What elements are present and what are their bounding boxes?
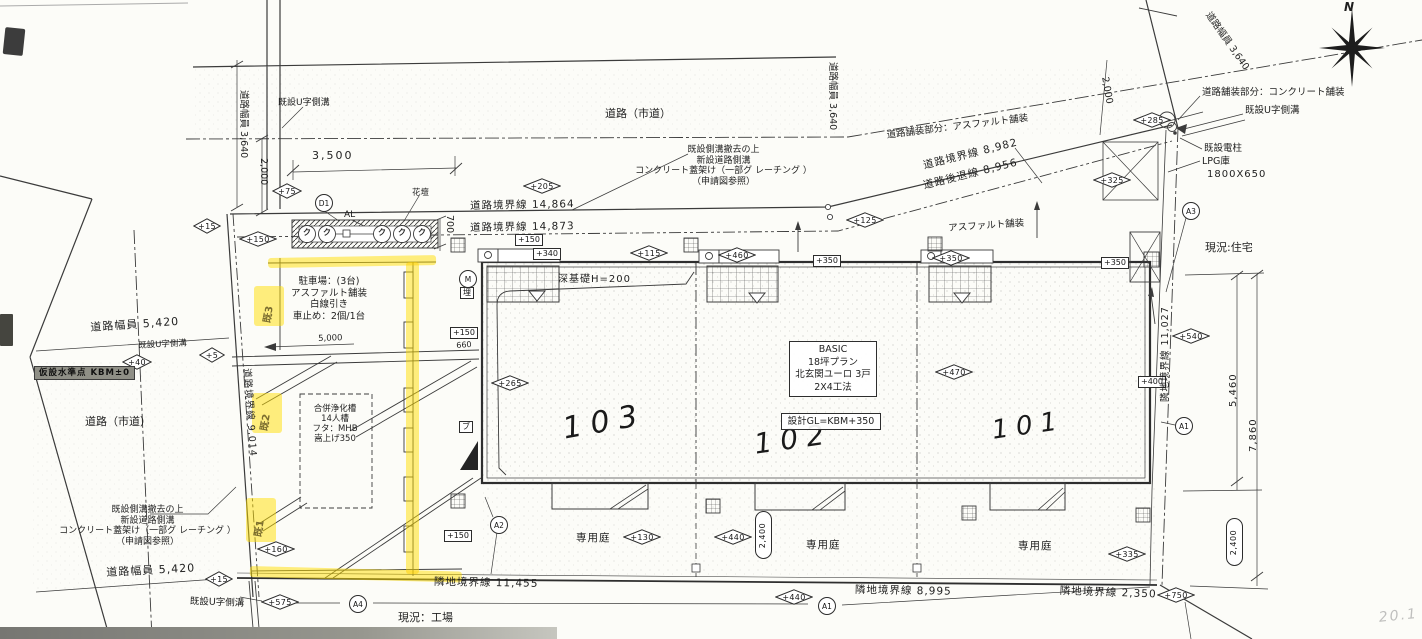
scan-edge-bar bbox=[0, 627, 557, 639]
scan-artifact-layer bbox=[0, 0, 1422, 639]
scan-blob-topleft bbox=[3, 27, 26, 56]
site-plan-canvas: +205+75+15+150+115+460+350+265+470+325+2… bbox=[0, 0, 1422, 639]
scan-blob-left bbox=[0, 314, 13, 346]
